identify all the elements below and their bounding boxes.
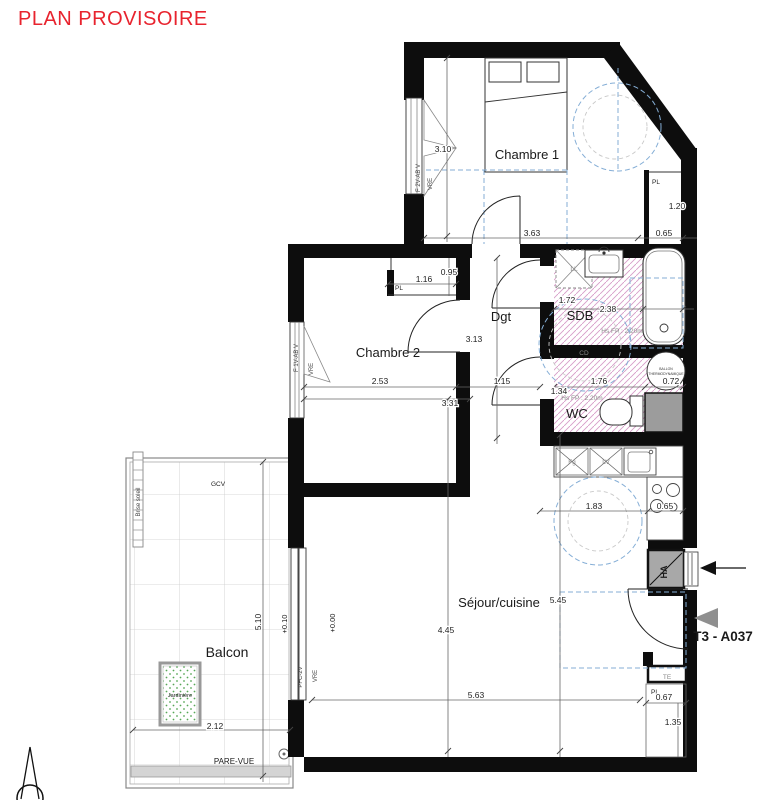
jardiniere-label: Jardinière <box>168 693 192 699</box>
pillow <box>527 62 559 82</box>
ceiling-height-wc: Hs FP : 2.20m <box>561 395 602 402</box>
window-type-c1: F 2V-AB V <box>416 164 422 192</box>
pare-vue-screen <box>131 766 291 777</box>
entry-arrow-icon <box>700 561 746 575</box>
dim-c1-pl-height: 1.20 <box>669 201 686 211</box>
window-shutter-c1: VRE <box>428 178 434 190</box>
dim-entry-pl-width: 0.67 <box>656 692 673 702</box>
balcony-drain <box>279 749 289 759</box>
bathroom-sink <box>585 247 623 277</box>
electrical-panel-label: TE <box>663 674 672 681</box>
dim-balcony-height: 5.10 <box>253 613 263 630</box>
dim-balcony-width: 2.12 <box>207 721 224 731</box>
dim-entry-pl-height: 1.35 <box>665 717 682 727</box>
dim-sdb-w1: 1.72 <box>559 295 576 305</box>
sdb-door <box>492 260 540 308</box>
dim-sejour-width: 5.63 <box>468 690 485 700</box>
fridge-label: Fg <box>568 459 576 466</box>
window-type-c2: F 1V-AB V <box>294 344 300 372</box>
floor-plan-drawing: Chambre 1 Chambre 2 Dgt SDB WC Séjour/cu… <box>0 0 774 800</box>
chambre1-door <box>472 196 520 244</box>
door-threshold <box>684 552 698 586</box>
unit-number-label: T3 - A037 <box>693 629 753 644</box>
room-label-sejour: Séjour/cuisine <box>458 595 540 610</box>
dishwasher-label: LV <box>602 459 610 466</box>
unit-marker-triangle-icon <box>694 608 718 628</box>
balcony-area <box>126 452 293 788</box>
level-balcony: +0.10 <box>280 615 289 634</box>
duct-shaft <box>645 393 683 432</box>
dim-sejour-h2: 4.45 <box>438 625 455 635</box>
entry-door-swing <box>628 589 688 649</box>
pare-vue-label: PARE-VUE <box>214 757 254 766</box>
kitchen-sink <box>624 448 656 475</box>
dim-kitchen-width2: 0.65 <box>657 501 674 511</box>
dim-c2-pl-width: 1.16 <box>416 274 433 284</box>
balcony-tile-grid <box>130 462 289 784</box>
room-label-chambre1: Chambre 1 <box>495 147 559 162</box>
entry-door-unit <box>648 550 698 588</box>
room-label-balcon: Balcon <box>206 644 249 660</box>
washing-machine-label: LL <box>570 266 578 273</box>
dim-c2-width: 2.53 <box>372 376 389 386</box>
dim-c1-height: 3.10 <box>435 144 452 154</box>
duct-label-cd: CD <box>579 350 589 357</box>
room-label-chambre2: Chambre 2 <box>356 345 420 360</box>
balcony-gcv-label: GCV <box>211 481 226 488</box>
north-arrow-icon <box>17 747 43 800</box>
floor-plan-page: PLAN PROVISOIRE <box>0 0 774 800</box>
dim-dgt-width: 1.15 <box>494 376 511 386</box>
dim-wc-width: 1.76 <box>591 376 608 386</box>
dim-sdb-w2: 2.38 <box>600 304 617 314</box>
dim-c2-width-total: 3.31 <box>442 398 459 408</box>
toilet <box>600 396 643 426</box>
room-label-sdb: SDB <box>567 308 594 323</box>
water-heater-label-2: THERMODYNAMIQUE <box>648 372 684 376</box>
room-label-dgt: Dgt <box>491 309 512 324</box>
brise-soleil-label: Brise soleil <box>136 487 142 516</box>
level-sejour: +0.00 <box>328 614 337 633</box>
dim-c2-pl-height: 0.95 <box>441 267 458 277</box>
pillow <box>489 62 521 82</box>
bathtub <box>643 248 685 345</box>
balcony-door-shutter: VRE <box>313 670 319 682</box>
ceiling-height-sdb: Hs FP : 2.20m <box>601 328 642 335</box>
dim-sejour-h1: 5.45 <box>550 595 567 605</box>
dim-c1-pl-width: 0.65 <box>656 228 673 238</box>
entry-mat-label: HA <box>659 565 669 578</box>
closet-label-c1: PL <box>652 179 660 186</box>
water-heater-label-1: BALLON <box>659 367 673 371</box>
window-shutter-c2: VRE <box>309 363 315 375</box>
dim-kitchen-width: 1.83 <box>586 501 603 511</box>
dim-dgt-height: 3.13 <box>466 334 483 344</box>
dim-ballon-width: 0.72 <box>663 376 680 386</box>
dim-c1-width: 3.63 <box>524 228 541 238</box>
room-label-wc: WC <box>566 406 588 421</box>
balcony-door-type: PFC-2V <box>298 666 304 687</box>
closet-label-c2: PL <box>395 285 403 292</box>
